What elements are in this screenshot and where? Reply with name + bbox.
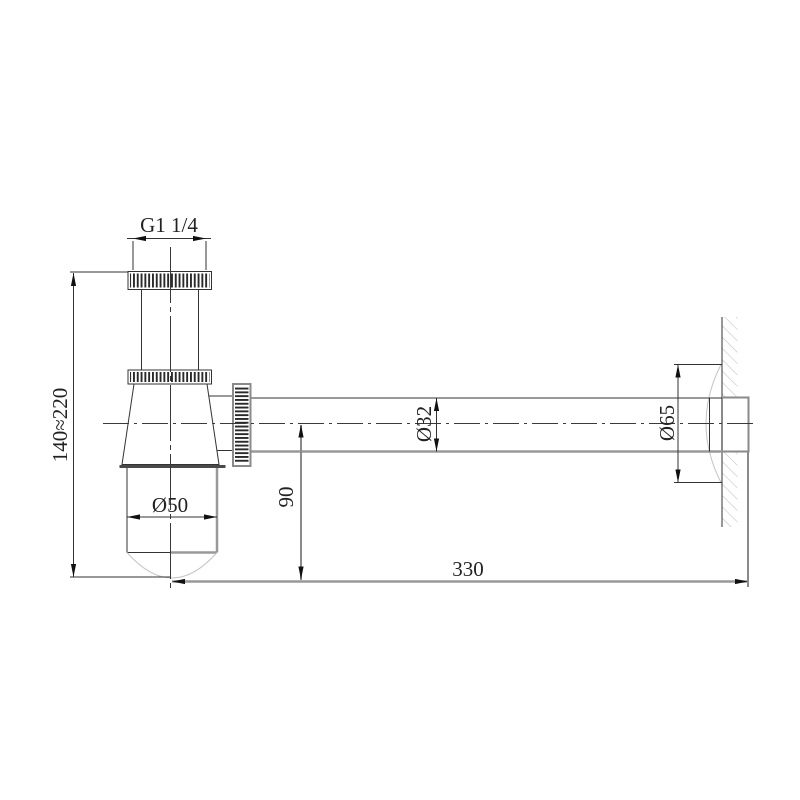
thread-size-label: G1 1/4 (140, 213, 198, 237)
arrow-down (675, 470, 680, 483)
dim-thread-size: G1 1/4 (127, 213, 211, 270)
top-knurled-nut (128, 272, 212, 290)
arrow-down (298, 567, 303, 580)
dim-flange-diameter: Ø65 (655, 365, 681, 483)
arrow-up (298, 425, 303, 438)
dim-pipe-diameter: Ø32 (412, 398, 439, 452)
wall-distance-label: 330 (452, 557, 484, 581)
dim-cup-diameter: Ø50 (127, 493, 217, 520)
cup-dome-arc (127, 553, 217, 579)
technical-drawing-canvas: G1 1/4 140≈220 Ø50 90 Ø32 Ø65 (0, 0, 800, 800)
bottle-trap-drawing: G1 1/4 140≈220 Ø50 90 Ø32 Ø65 (0, 0, 800, 800)
outlet-height-label: 90 (274, 487, 298, 508)
arrow-right (204, 514, 217, 519)
side-knurled-nut (233, 384, 251, 466)
flange-diameter-label: Ø65 (655, 405, 679, 441)
height-range-label: 140≈220 (48, 388, 72, 463)
pipe-stub-in-wall (722, 398, 749, 452)
arrow-up (71, 273, 76, 286)
wall-section (722, 317, 749, 527)
arrow-left (172, 579, 185, 584)
trap-cup (127, 468, 217, 578)
middle-knurled-nut (128, 370, 212, 384)
arrow-left (127, 514, 140, 519)
arrow-down (71, 564, 76, 577)
dim-wall-distance: 330 (172, 452, 748, 587)
arrow-right (735, 579, 748, 584)
arrow-up (675, 365, 680, 378)
dim-outlet-height: 90 (274, 425, 304, 581)
pipe-diameter-label: Ø32 (412, 406, 436, 442)
cup-diameter-label: Ø50 (152, 493, 188, 517)
bottle-trap-assembly (120, 272, 251, 579)
